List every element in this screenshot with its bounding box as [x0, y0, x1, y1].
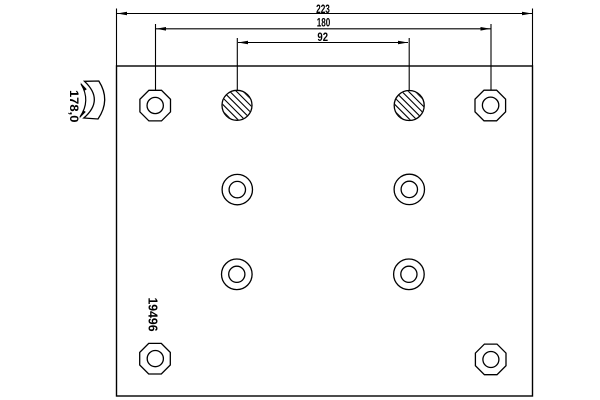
- svg-text:223: 223: [316, 2, 330, 16]
- svg-text:180: 180: [317, 18, 331, 30]
- svg-text:19496: 19496: [146, 298, 161, 332]
- svg-text:178,0: 178,0: [67, 90, 79, 123]
- svg-text:92: 92: [317, 32, 328, 44]
